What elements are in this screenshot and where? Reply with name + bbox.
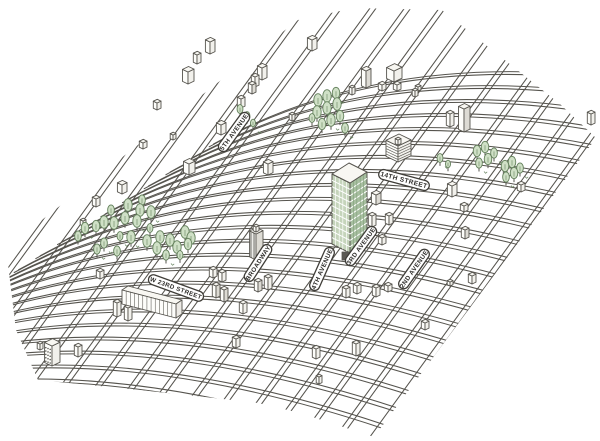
- street-grid: [0, 0, 600, 441]
- building-block: [378, 234, 386, 245]
- street-label-4th-avenue: 4TH AVENUE: [308, 246, 336, 292]
- building-block: [384, 282, 392, 292]
- building-block: [371, 190, 381, 205]
- building-block: [209, 266, 217, 278]
- building-block: [459, 104, 471, 133]
- building-block: [37, 341, 43, 350]
- building-block: [218, 269, 226, 282]
- building-block: [468, 272, 476, 284]
- building-block: [387, 64, 402, 82]
- park-cluster-east-west-half: [473, 141, 502, 173]
- building-block: [517, 181, 525, 192]
- building-block: [113, 299, 121, 317]
- building-block: [307, 35, 317, 51]
- building-block: [412, 88, 418, 97]
- building-block: [395, 137, 401, 145]
- building-block: [368, 212, 376, 227]
- building-block: [264, 274, 272, 290]
- building-block: [587, 110, 595, 125]
- building-block: [205, 37, 215, 54]
- building-block: [361, 66, 371, 88]
- building-block: [220, 286, 228, 302]
- building-block: [289, 112, 295, 121]
- building-block: [153, 99, 161, 110]
- building-block: [353, 282, 361, 294]
- building-block: [446, 110, 454, 127]
- building-block: [45, 339, 60, 366]
- building-block: [316, 374, 322, 384]
- building-block: [183, 67, 195, 85]
- building-block: [124, 304, 132, 321]
- building-block: [216, 120, 226, 135]
- building-block: [385, 212, 393, 225]
- building-block: [139, 139, 147, 149]
- street-label-2nd-avenue: 2ND AVENUE: [397, 247, 432, 290]
- building-block: [96, 268, 104, 279]
- building-block: [349, 85, 355, 95]
- building-block: [92, 195, 100, 207]
- scattered-trees: [437, 154, 450, 172]
- building-block: [263, 159, 273, 175]
- building-block: [312, 345, 320, 359]
- building-block: [342, 285, 350, 298]
- building-block: [232, 335, 240, 348]
- building-block: [461, 226, 469, 239]
- building-block: [254, 278, 262, 292]
- building-block: [421, 319, 429, 330]
- building-block: [212, 282, 220, 298]
- building-block: [447, 279, 453, 286]
- building-block: [352, 340, 360, 356]
- building-block: [460, 202, 468, 212]
- building-block: [378, 81, 386, 91]
- building-block: [170, 132, 176, 140]
- city-map-canvas: 5TH AVENUE14TH STREETW 23RD STREETBROADW…: [0, 0, 600, 441]
- building-block: [253, 224, 259, 232]
- building-block: [74, 343, 82, 357]
- building-block: [393, 81, 401, 91]
- building-block: [184, 159, 196, 176]
- isometric-city-map-illustration: 5TH AVENUE14TH STREETW 23RD STREETBROADW…: [0, 0, 600, 441]
- building-block: [372, 284, 380, 297]
- building-block: [248, 81, 256, 94]
- building-block: [447, 181, 457, 197]
- building-block: [239, 300, 247, 314]
- building-block: [193, 51, 201, 64]
- building-block: [117, 180, 127, 194]
